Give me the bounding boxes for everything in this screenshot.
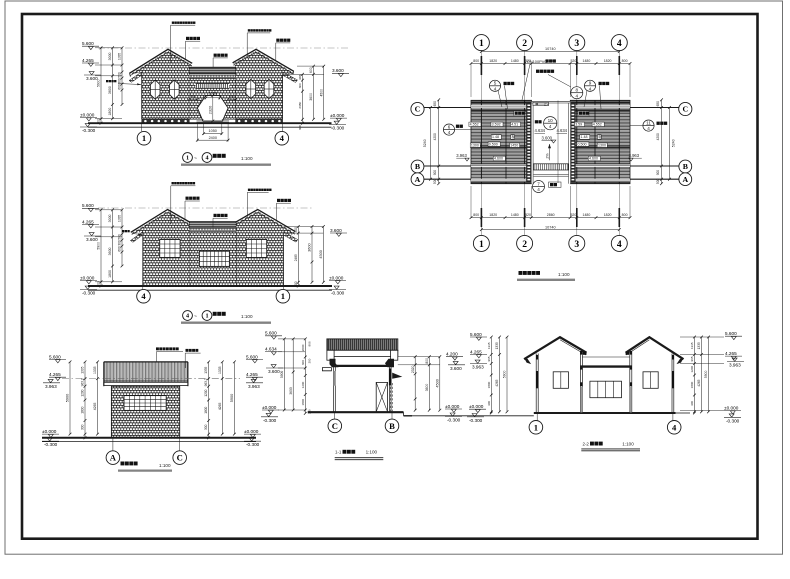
svg-text:1200: 1200 — [81, 389, 85, 396]
svg-text:4.265: 4.265 — [49, 372, 61, 377]
svg-text:1335: 1335 — [118, 53, 122, 60]
svg-text:8: 8 — [576, 88, 579, 93]
svg-text:963.2: 963.2 — [81, 378, 85, 386]
svg-text:4265: 4265 — [697, 379, 701, 386]
svg-text:±0.000: ±0.000 — [80, 275, 95, 280]
svg-text:3600: 3600 — [108, 86, 112, 94]
svg-text:4.634: 4.634 — [265, 346, 277, 351]
svg-text:1.48: 1.48 — [492, 135, 499, 139]
svg-text:C: C — [177, 453, 183, 463]
svg-text:1:100: 1:100 — [241, 314, 253, 319]
svg-text:3.963: 3.963 — [629, 153, 640, 158]
svg-text:1:100: 1:100 — [241, 156, 253, 161]
svg-text:300: 300 — [204, 424, 208, 430]
svg-text:1820: 1820 — [604, 213, 612, 217]
svg-text:±0.000: ±0.000 — [330, 113, 345, 118]
svg-text:1050: 1050 — [209, 91, 217, 95]
svg-text:±0.000: ±0.000 — [329, 275, 344, 280]
svg-text:3000: 3000 — [108, 52, 112, 60]
svg-text:520: 520 — [570, 213, 576, 217]
svg-text:1:100: 1:100 — [159, 463, 171, 468]
svg-text:7: 7 — [537, 181, 540, 186]
svg-text:±0.000: ±0.000 — [724, 405, 739, 410]
svg-text:1: 1 — [205, 313, 208, 320]
svg-text:4: 4 — [448, 130, 451, 135]
svg-text:1800: 1800 — [487, 381, 491, 388]
svg-text:3.600: 3.600 — [86, 76, 98, 81]
svg-text:1335: 1335 — [81, 366, 85, 373]
svg-text:5900: 5900 — [704, 371, 708, 379]
svg-text:1: 1 — [479, 38, 484, 49]
svg-text:A: A — [682, 175, 688, 184]
svg-text:5900: 5900 — [503, 371, 507, 379]
svg-text:-0.300: -0.300 — [44, 442, 58, 447]
svg-text:4: 4 — [647, 126, 650, 131]
svg-text:6: 6 — [448, 124, 451, 129]
svg-text:3: 3 — [574, 239, 579, 250]
svg-text:3.963: 3.963 — [729, 363, 741, 368]
svg-text:1335: 1335 — [218, 366, 222, 374]
svg-text:~: ~ — [194, 314, 197, 320]
svg-text:300: 300 — [97, 118, 101, 124]
svg-text:-0.300: -0.300 — [469, 418, 483, 423]
svg-text:2400: 2400 — [209, 136, 217, 140]
svg-text:300: 300 — [118, 240, 122, 246]
svg-text:3600: 3600 — [308, 243, 312, 251]
svg-text:900: 900 — [433, 170, 437, 176]
svg-text:520: 520 — [525, 213, 531, 217]
svg-text:4: 4 — [537, 187, 540, 192]
svg-text:3.600: 3.600 — [332, 68, 344, 73]
svg-text:2%: 2% — [545, 153, 549, 159]
svg-text:1200: 1200 — [301, 381, 305, 388]
svg-text:1335: 1335 — [690, 342, 694, 349]
svg-text:1480: 1480 — [511, 213, 519, 217]
svg-text:1200: 1200 — [690, 366, 694, 373]
svg-text:3600: 3600 — [309, 93, 313, 101]
svg-text:1800: 1800 — [108, 270, 112, 278]
svg-text:800: 800 — [473, 213, 479, 217]
svg-text:1335: 1335 — [697, 342, 701, 349]
svg-text:3.963: 3.963 — [456, 153, 467, 158]
svg-text:3.963: 3.963 — [248, 384, 260, 389]
svg-text:5.600: 5.600 — [246, 354, 258, 359]
svg-text:2485: 2485 — [294, 254, 298, 261]
svg-text:±0.000: ±0.000 — [445, 404, 460, 409]
svg-text:1820: 1820 — [489, 59, 497, 63]
svg-text:4: 4 — [141, 291, 146, 301]
svg-text:-0.300: -0.300 — [82, 291, 96, 296]
svg-text:4: 4 — [617, 38, 622, 49]
svg-text:3.600: 3.600 — [450, 366, 462, 371]
svg-text:1335: 1335 — [93, 366, 97, 374]
svg-text:1: 1 — [142, 133, 146, 143]
svg-text:4.51: 4.51 — [511, 123, 518, 127]
svg-text:4500: 4500 — [319, 89, 323, 97]
svg-text:300: 300 — [294, 227, 298, 233]
svg-text:-0.300: -0.300 — [726, 418, 740, 423]
svg-text:-0.300: -0.300 — [331, 126, 345, 131]
svg-text:2320: 2320 — [209, 106, 213, 114]
svg-text:4.265: 4.265 — [725, 351, 737, 356]
svg-text:9: 9 — [589, 81, 592, 86]
svg-text:3.600: 3.600 — [86, 237, 98, 242]
svg-text:1300: 1300 — [598, 143, 606, 147]
svg-text:1: 1 — [186, 155, 189, 162]
svg-text:±0.000: ±0.000 — [469, 404, 484, 409]
svg-text:3000: 3000 — [108, 214, 112, 222]
svg-text:300: 300 — [118, 78, 122, 84]
svg-text:1335: 1335 — [118, 215, 122, 222]
svg-text:±0.000: ±0.000 — [244, 429, 259, 434]
svg-text:950: 950 — [229, 95, 235, 99]
svg-text:650: 650 — [433, 101, 437, 107]
svg-text:4200: 4200 — [433, 133, 437, 140]
svg-text:3.963: 3.963 — [472, 365, 484, 370]
svg-text:4.600: 4.600 — [494, 157, 503, 161]
svg-text:0.500: 0.500 — [578, 142, 587, 146]
svg-text:4.552: 4.552 — [593, 123, 602, 127]
svg-text:3600: 3600 — [425, 384, 429, 392]
svg-text:3600: 3600 — [289, 387, 293, 395]
svg-text:1050: 1050 — [208, 129, 216, 133]
svg-text:~: ~ — [194, 156, 197, 162]
svg-text:3.600: 3.600 — [542, 135, 553, 140]
svg-text:4: 4 — [589, 86, 592, 91]
svg-text:标: 标 — [598, 134, 602, 139]
svg-text:10740: 10740 — [545, 47, 556, 51]
svg-text:300: 300 — [307, 358, 311, 363]
svg-text:1800: 1800 — [301, 399, 305, 406]
svg-text:2860: 2860 — [547, 213, 555, 217]
svg-text:5900: 5900 — [280, 371, 284, 379]
svg-text:-0.300: -0.300 — [246, 442, 260, 447]
svg-text:5.600: 5.600 — [470, 332, 482, 337]
svg-text:3.963: 3.963 — [45, 384, 57, 389]
svg-text:950: 950 — [190, 95, 196, 99]
svg-text:11: 11 — [646, 120, 651, 125]
svg-text:4.265: 4.265 — [470, 349, 482, 354]
svg-text:1800: 1800 — [690, 381, 694, 388]
svg-text:1800: 1800 — [81, 406, 85, 413]
svg-text:600: 600 — [309, 67, 313, 73]
svg-text:10: 10 — [548, 118, 554, 123]
svg-text:300: 300 — [298, 83, 302, 88]
svg-text:2%: 2% — [544, 103, 549, 107]
svg-text:4: 4 — [672, 422, 677, 432]
svg-text:965: 965 — [298, 74, 302, 79]
svg-text:4265: 4265 — [495, 379, 499, 386]
svg-text:1480: 1480 — [583, 59, 591, 63]
svg-text:600: 600 — [118, 246, 122, 252]
svg-text:4: 4 — [280, 133, 285, 143]
svg-text:300: 300 — [307, 409, 311, 414]
svg-text:C: C — [682, 105, 688, 114]
svg-text:3.600: 3.600 — [268, 369, 280, 374]
svg-text:965: 965 — [690, 356, 694, 361]
svg-text:800: 800 — [473, 59, 479, 63]
svg-text:4.634: 4.634 — [535, 128, 546, 133]
svg-text:800: 800 — [622, 213, 628, 217]
svg-text:4265: 4265 — [93, 403, 97, 411]
svg-text:4: 4 — [494, 86, 497, 91]
svg-text:1820: 1820 — [489, 213, 497, 217]
svg-text:4: 4 — [617, 239, 622, 250]
svg-text:520: 520 — [570, 59, 576, 63]
svg-text:1.48: 1.48 — [581, 135, 588, 139]
svg-text:标: 标 — [512, 134, 516, 139]
svg-text:3600: 3600 — [108, 247, 112, 255]
svg-text:5.600: 5.600 — [49, 354, 61, 359]
svg-text:3.59: 3.59 — [575, 123, 582, 127]
svg-text:5.600: 5.600 — [265, 331, 277, 336]
svg-text:4: 4 — [576, 93, 579, 98]
svg-text:4.552: 4.552 — [470, 123, 479, 127]
svg-text:5900: 5900 — [97, 242, 101, 250]
svg-text:2380: 2380 — [298, 101, 302, 108]
svg-text:963.2: 963.2 — [204, 378, 208, 386]
svg-text:±0.000: ±0.000 — [42, 429, 57, 434]
svg-text:-0.300: -0.300 — [331, 291, 345, 296]
svg-text:500: 500 — [118, 72, 122, 78]
svg-text:300: 300 — [294, 281, 298, 287]
svg-text:1200: 1200 — [204, 389, 208, 396]
svg-text:900: 900 — [656, 170, 660, 176]
svg-text:1800: 1800 — [204, 406, 208, 413]
svg-text:300: 300 — [487, 401, 491, 406]
svg-text:C: C — [332, 421, 338, 431]
svg-text:1335: 1335 — [487, 342, 491, 349]
svg-text:1: 1 — [534, 422, 538, 432]
svg-text:4200: 4200 — [656, 133, 660, 140]
svg-text:4: 4 — [186, 313, 189, 320]
svg-text:A: A — [110, 453, 117, 463]
svg-text:-0.300: -0.300 — [82, 128, 96, 133]
svg-text:1300: 1300 — [471, 143, 479, 147]
svg-text:4: 4 — [205, 155, 208, 162]
svg-text:500: 500 — [118, 234, 122, 240]
svg-text:300: 300 — [97, 281, 101, 287]
svg-text:2: 2 — [522, 38, 527, 49]
svg-text:±0.000: ±0.000 — [262, 405, 277, 410]
svg-text:5240: 5240 — [423, 139, 427, 147]
svg-text:650: 650 — [656, 101, 660, 107]
svg-text:1450: 1450 — [510, 143, 518, 147]
svg-text:5900: 5900 — [230, 394, 234, 402]
svg-text:1: 1 — [479, 239, 484, 250]
svg-text:-0.300: -0.300 — [263, 418, 277, 423]
svg-text:1480: 1480 — [511, 59, 519, 63]
svg-text:10740: 10740 — [545, 225, 556, 229]
svg-text:4.265: 4.265 — [82, 58, 94, 63]
svg-text:5240: 5240 — [672, 139, 676, 147]
svg-text:3.592: 3.592 — [492, 123, 501, 127]
svg-text:4.200: 4.200 — [446, 352, 458, 357]
svg-text:1: 1 — [281, 291, 285, 301]
svg-text:B: B — [389, 421, 395, 431]
svg-text:600: 600 — [301, 360, 305, 365]
svg-text:600: 600 — [118, 84, 122, 90]
svg-text:4.634: 4.634 — [557, 128, 568, 133]
svg-text:4500: 4500 — [435, 379, 439, 387]
svg-text:±0.000: ±0.000 — [80, 112, 95, 117]
svg-text:800: 800 — [425, 358, 429, 364]
svg-text:0.500: 0.500 — [489, 142, 498, 146]
svg-text:5: 5 — [494, 81, 497, 86]
svg-text:300: 300 — [298, 125, 302, 130]
svg-text:965: 965 — [487, 356, 491, 361]
svg-text:800: 800 — [622, 59, 628, 63]
svg-text:2-2: 2-2 — [583, 441, 590, 446]
svg-text:2860: 2860 — [547, 59, 555, 63]
svg-text:4500: 4500 — [319, 250, 323, 258]
svg-text:4: 4 — [549, 124, 552, 129]
svg-text:4.265: 4.265 — [246, 372, 258, 377]
svg-text:1800: 1800 — [108, 108, 112, 116]
svg-text:1335: 1335 — [204, 366, 208, 373]
svg-text:1335: 1335 — [495, 342, 499, 349]
svg-text:3.600: 3.600 — [330, 228, 342, 233]
svg-text:2000: 2000 — [301, 344, 305, 351]
svg-text:1:100: 1:100 — [622, 441, 634, 446]
svg-text:B: B — [683, 162, 688, 171]
svg-text:520: 520 — [525, 59, 531, 63]
svg-text:300: 300 — [81, 424, 85, 430]
svg-text:5.600: 5.600 — [725, 331, 737, 336]
svg-text:1:100: 1:100 — [558, 272, 570, 277]
svg-text:4.265: 4.265 — [82, 219, 94, 224]
svg-text:2: 2 — [522, 239, 527, 250]
svg-text:300: 300 — [690, 401, 694, 406]
svg-text:3: 3 — [574, 38, 579, 49]
svg-text:1480: 1480 — [583, 213, 591, 217]
svg-text:4265: 4265 — [218, 403, 222, 411]
svg-text:966: 966 — [307, 341, 311, 346]
svg-text:C: C — [415, 105, 421, 114]
svg-text:1-1: 1-1 — [335, 450, 342, 455]
svg-text:A: A — [415, 175, 421, 184]
svg-text:4.600: 4.600 — [589, 157, 598, 161]
svg-text:B: B — [415, 162, 420, 171]
svg-text:-0.300: -0.300 — [447, 417, 461, 422]
svg-text:5.600: 5.600 — [82, 41, 94, 46]
svg-text:1820: 1820 — [604, 59, 612, 63]
svg-text:2320: 2320 — [411, 366, 415, 374]
svg-text:1:100: 1:100 — [366, 450, 378, 455]
svg-text:5.600: 5.600 — [82, 203, 94, 208]
svg-text:5900: 5900 — [66, 394, 70, 402]
